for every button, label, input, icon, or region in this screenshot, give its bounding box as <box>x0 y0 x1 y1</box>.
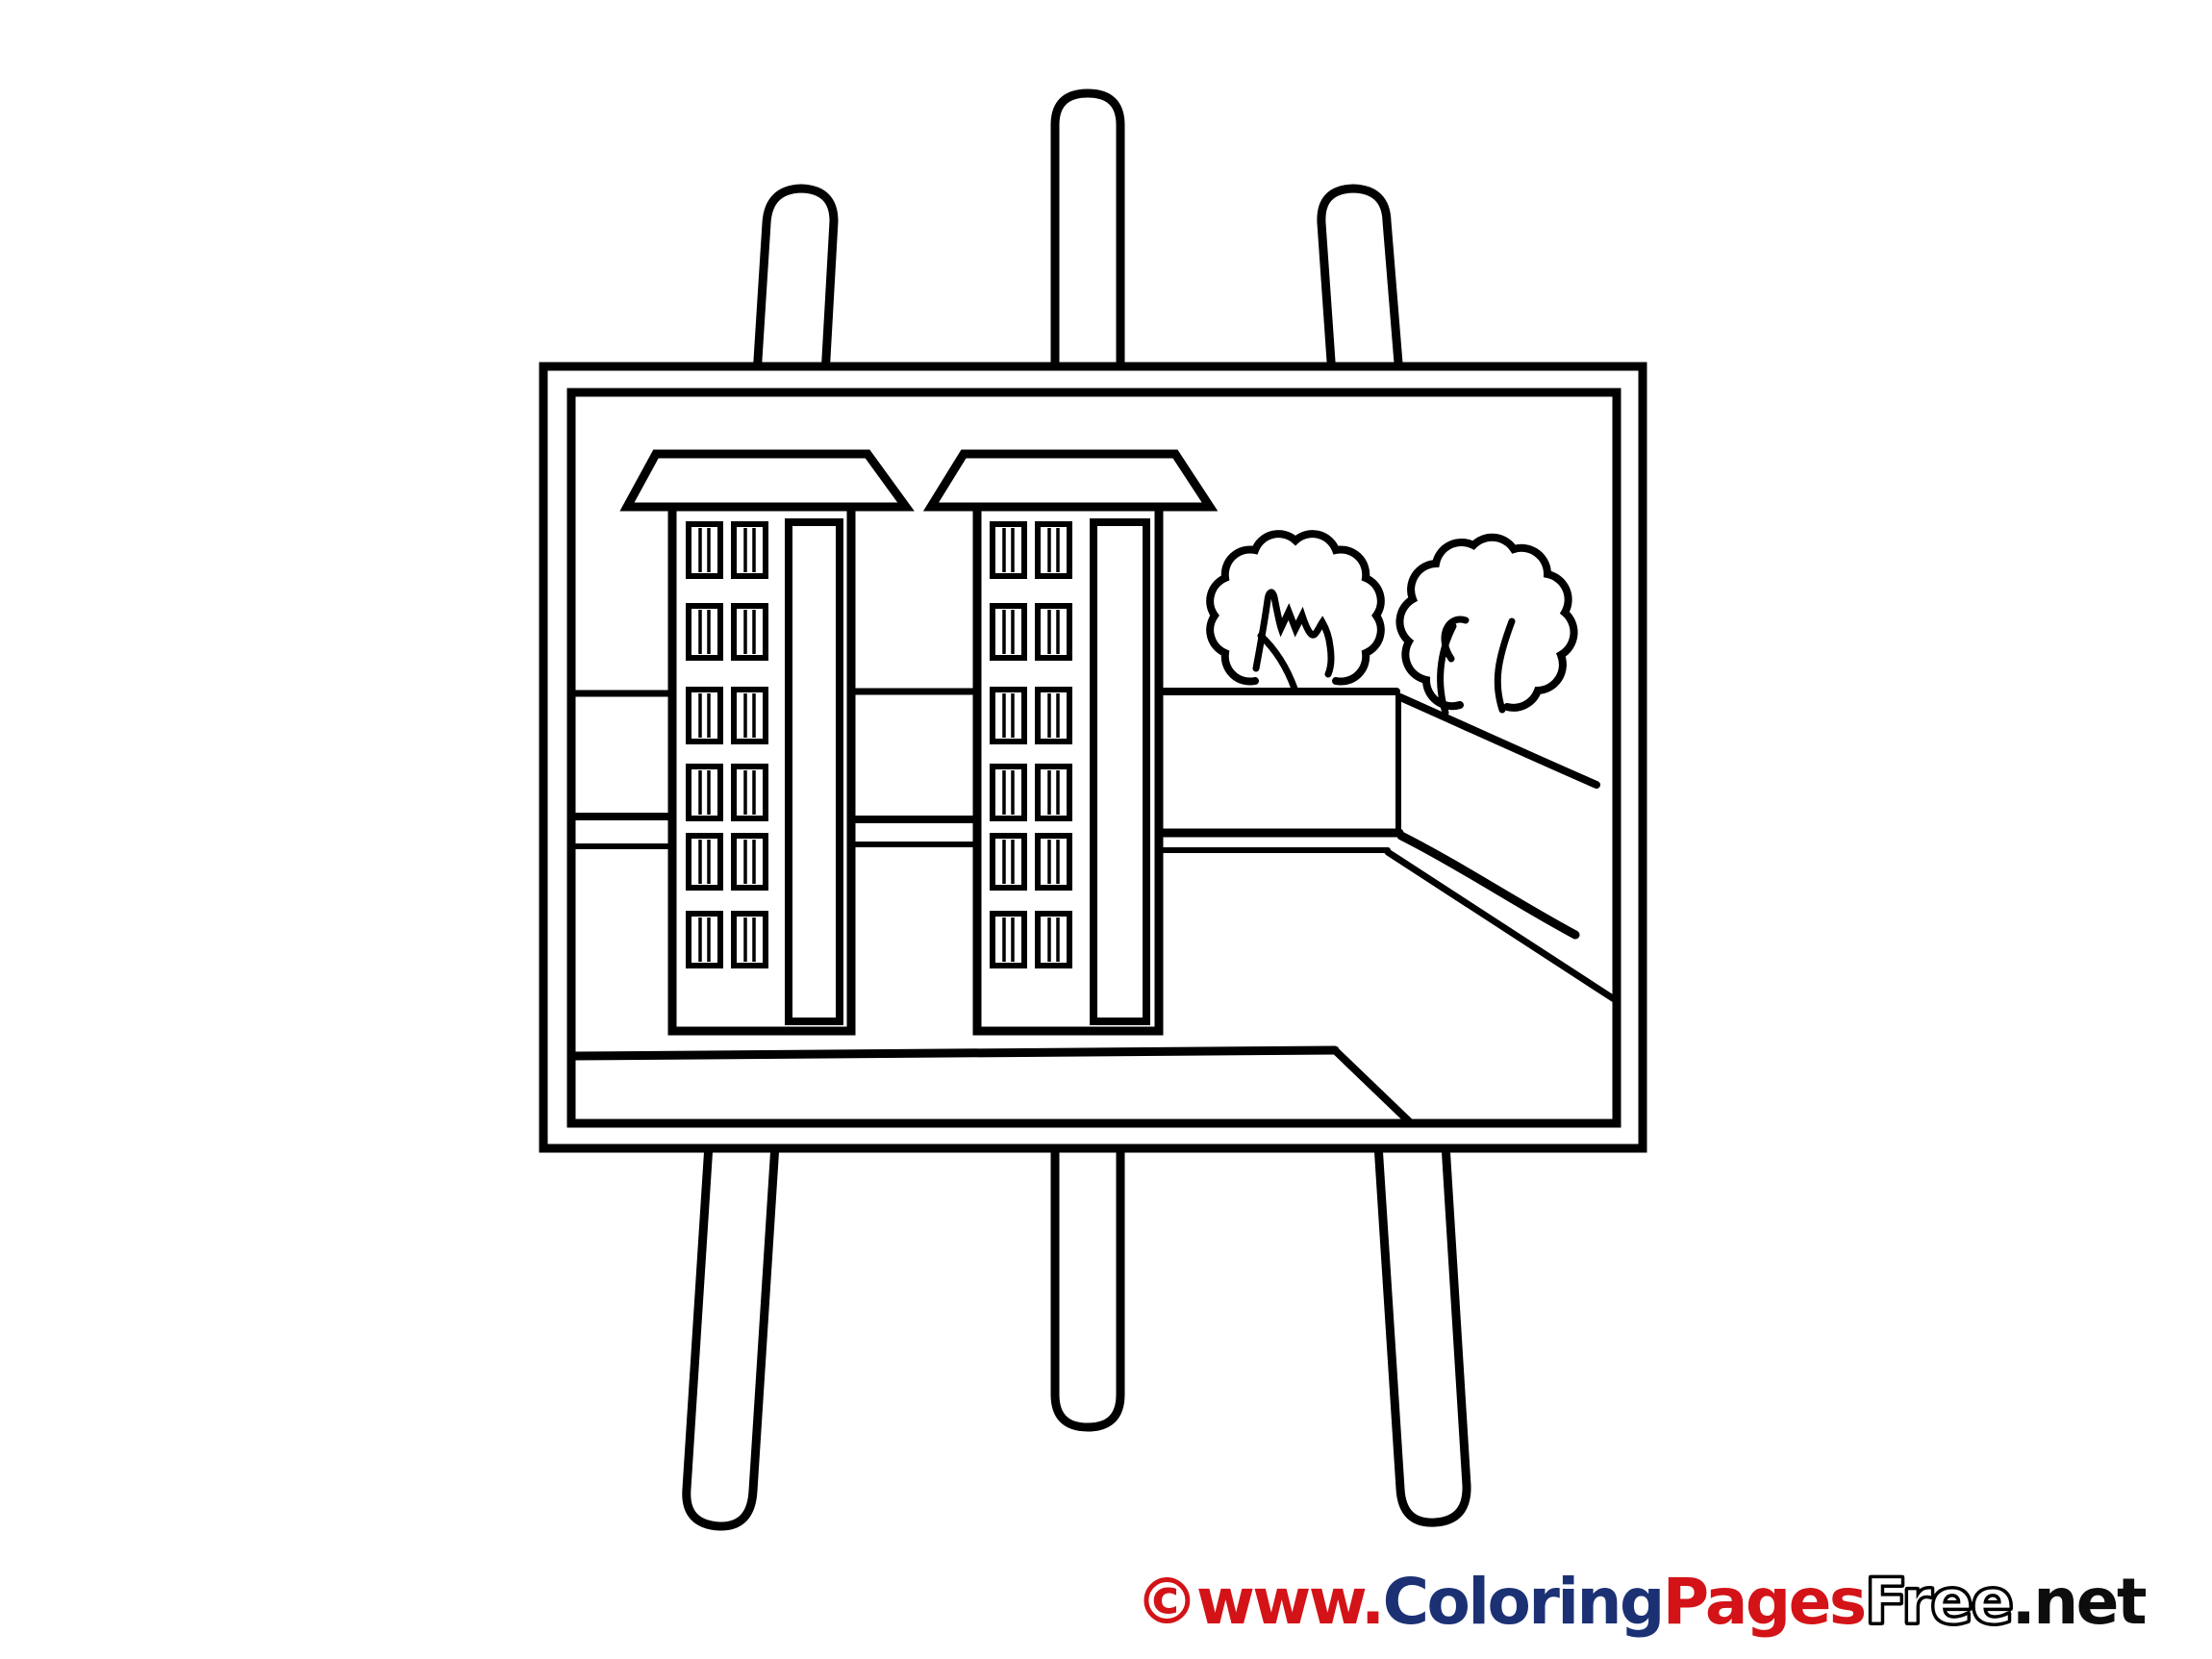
easel-leg-right <box>1378 1144 1467 1522</box>
easel-top-post-right <box>1321 189 1399 375</box>
easel-painting-drawing <box>0 0 2212 1659</box>
window <box>689 914 720 966</box>
building-right-roof <box>931 454 1210 507</box>
window <box>734 767 766 818</box>
window <box>689 524 720 576</box>
window <box>734 524 766 576</box>
window <box>1038 606 1069 658</box>
easel-top-post-middle <box>1055 93 1120 375</box>
window <box>734 606 766 658</box>
watermark-segment: Free <box>1865 1571 2012 1634</box>
easel-leg-left <box>687 1144 775 1526</box>
road-bottom-line <box>573 1050 1335 1056</box>
coloring-page: ©www.ColoringPagesFree.net <box>0 0 2212 1659</box>
easel-top-post-left <box>757 189 834 375</box>
watermark-segment: .net <box>2012 1571 2145 1634</box>
watermark-segment: Pages <box>1663 1571 1865 1634</box>
building-right-entrance-shaft <box>1093 522 1146 1021</box>
window <box>1038 690 1069 742</box>
window <box>1038 524 1069 576</box>
window <box>993 690 1024 742</box>
easel-top-posts <box>757 93 1399 375</box>
window <box>734 836 766 888</box>
window <box>734 690 766 742</box>
window <box>993 767 1024 818</box>
window <box>689 606 720 658</box>
window <box>689 836 720 888</box>
building-left-entrance-shaft <box>789 522 840 1021</box>
watermark: ©www.ColoringPagesFree.net <box>1135 1571 2145 1634</box>
window <box>689 767 720 818</box>
window <box>993 914 1024 966</box>
easel-leg-middle <box>1055 1144 1120 1427</box>
building-left-roof <box>627 454 906 507</box>
window <box>1038 914 1069 966</box>
window <box>1038 836 1069 888</box>
window <box>1038 767 1069 818</box>
watermark-segment: Coloring <box>1383 1571 1663 1634</box>
window <box>993 606 1024 658</box>
window <box>993 524 1024 576</box>
watermark-segment: ©www. <box>1135 1571 1382 1634</box>
window <box>689 690 720 742</box>
window <box>993 836 1024 888</box>
window <box>734 914 766 966</box>
easel-legs <box>687 1144 1467 1526</box>
